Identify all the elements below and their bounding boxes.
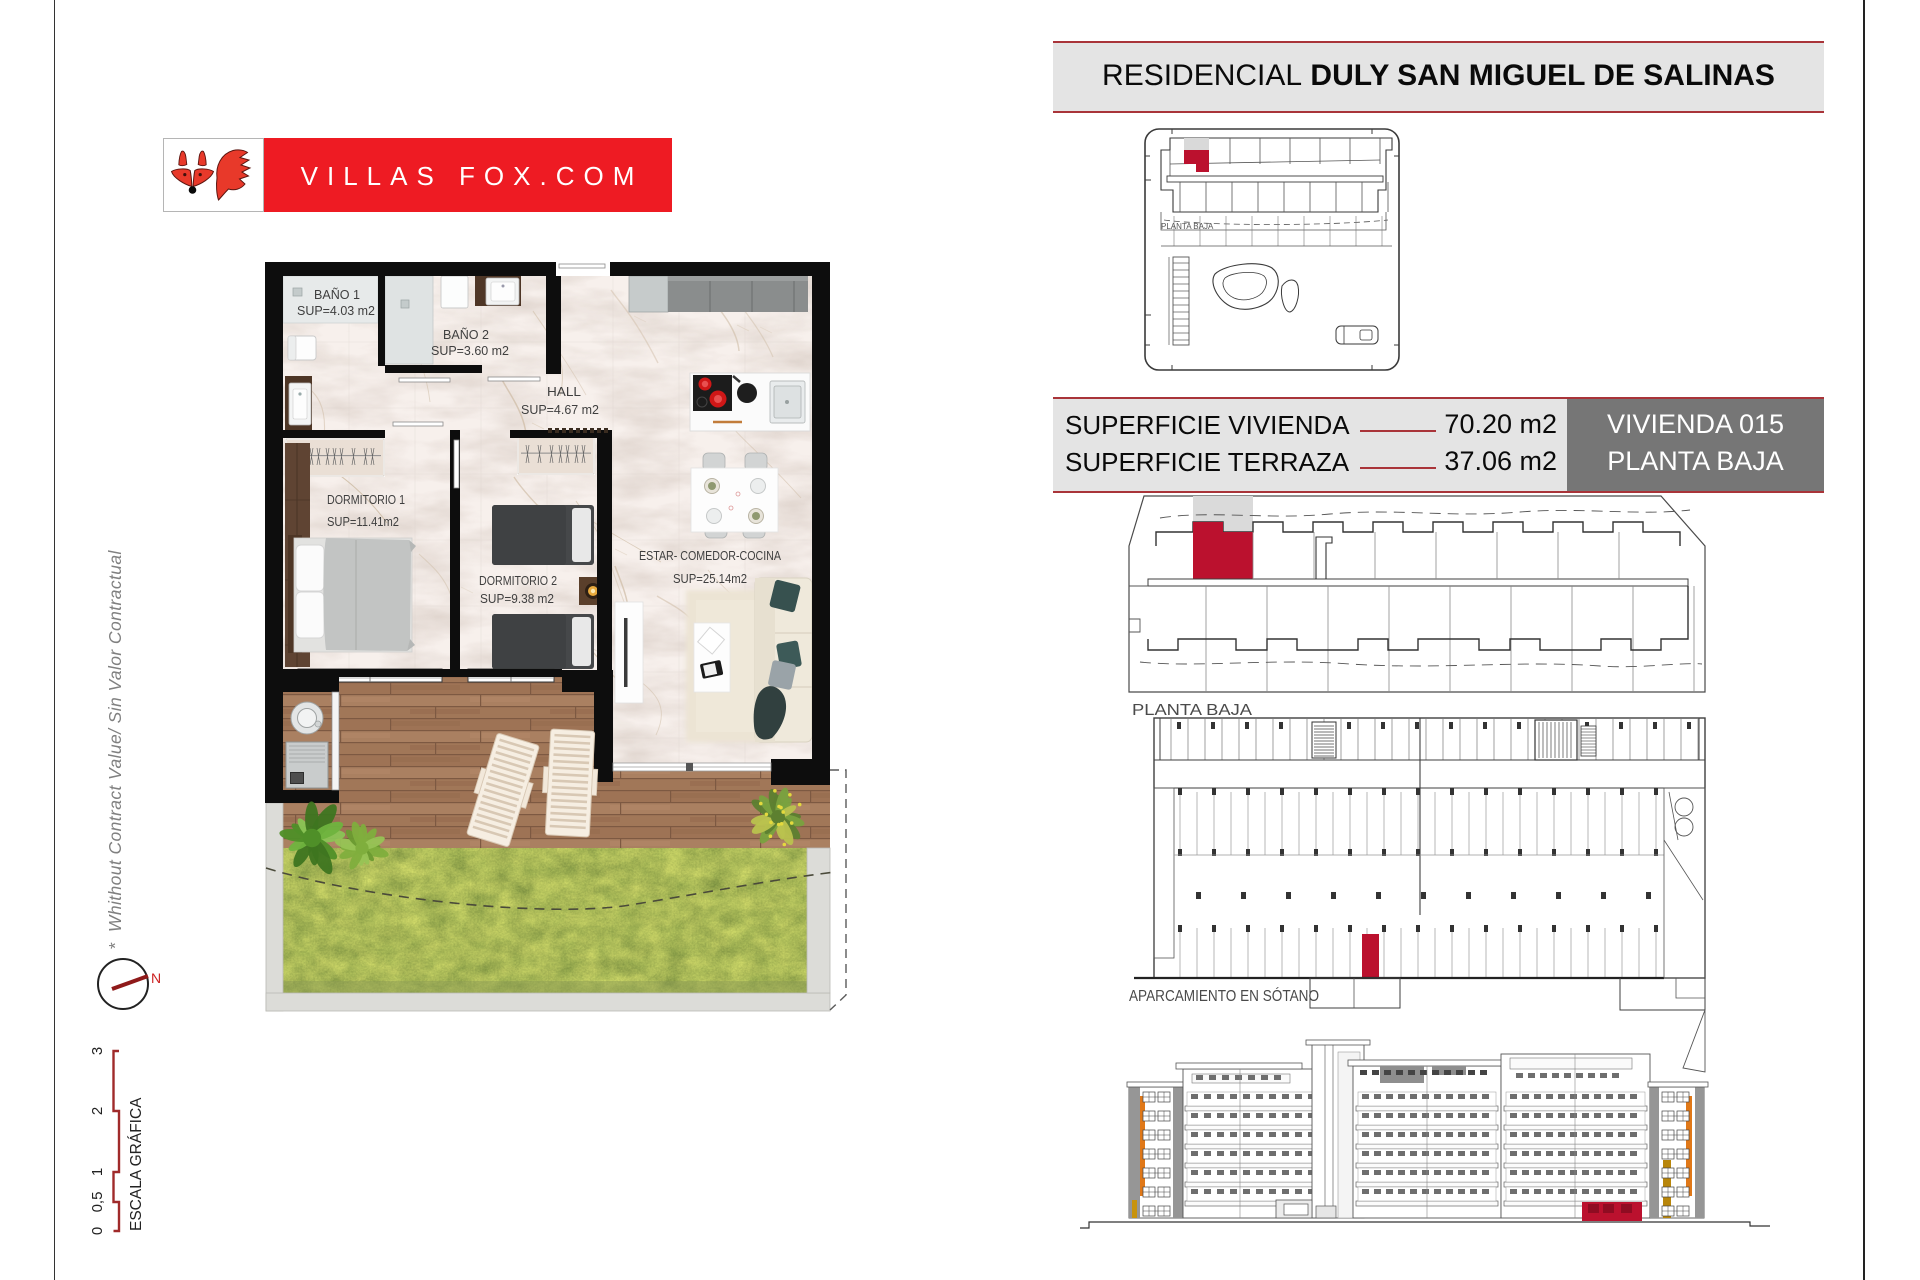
svg-text:3: 3 <box>89 1047 106 1055</box>
svg-text:2: 2 <box>89 1107 106 1115</box>
svg-text:SUP=9.38 m2: SUP=9.38 m2 <box>480 591 554 606</box>
svg-text:BAÑO 2: BAÑO 2 <box>443 327 489 342</box>
svg-text:BAÑO 1: BAÑO 1 <box>314 287 360 302</box>
svg-text:ESTAR- COMEDOR-COCINA: ESTAR- COMEDOR-COCINA <box>639 548 781 563</box>
svg-text:HALL: HALL <box>547 384 581 399</box>
svg-text:ESCALA GRÁFICA: ESCALA GRÁFICA <box>128 1097 145 1231</box>
svg-text:SUP=11.41m2: SUP=11.41m2 <box>327 514 399 529</box>
svg-text:DORMITORIO 1: DORMITORIO 1 <box>327 492 405 507</box>
svg-text:SUP=25.14m2: SUP=25.14m2 <box>673 571 747 586</box>
svg-text:DORMITORIO 2: DORMITORIO 2 <box>479 573 557 588</box>
svg-text:0: 0 <box>89 1227 106 1235</box>
svg-text:1: 1 <box>89 1168 106 1176</box>
svg-text:SUP=4.67 m2: SUP=4.67 m2 <box>521 402 599 417</box>
svg-text:SUP=4.03 m2: SUP=4.03 m2 <box>297 303 375 318</box>
svg-text:0,5: 0,5 <box>89 1192 106 1213</box>
svg-text:APARCAMIENTO EN SÓTANO: APARCAMIENTO EN SÓTANO <box>1129 986 1319 1005</box>
svg-text:PLANTA BAJA: PLANTA BAJA <box>1161 222 1214 231</box>
svg-text:N: N <box>151 970 161 986</box>
svg-text:SUP=3.60 m2: SUP=3.60 m2 <box>431 343 509 358</box>
